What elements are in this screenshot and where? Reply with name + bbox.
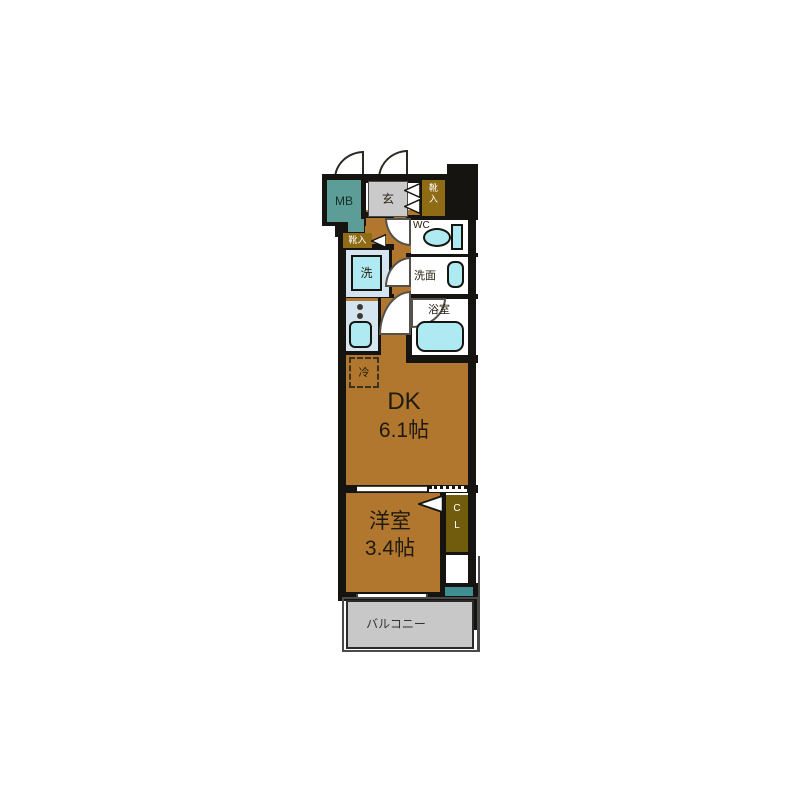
bathroom: 浴室 [412,299,468,355]
wc-room: WC [411,220,468,254]
dotted-wall-segment [429,486,467,492]
fridge-space: 冷 [349,357,379,388]
washer-area: 洗 [346,250,389,297]
floor-plan: MB 玄 靴入 WC 洗面 浴室 靴入 洗 [0,0,800,800]
wall-right [468,220,476,583]
toilet-bowl-icon [423,228,451,247]
balcony-label: バルコニー [348,602,472,647]
washroom: 洗面 [411,257,468,294]
closet-bottom-line [444,552,470,555]
dk-name: DK [354,388,454,416]
shoe-cabinet-upper: 靴入 [420,178,447,218]
shoe-cabinet-lower-label: 靴入 [343,233,372,248]
fridge-label: 冷 [351,359,377,387]
kitchen-area [346,301,378,351]
entrance-area: 玄 [368,181,408,217]
washing-machine-icon: 洗 [351,255,382,291]
shoe-door-triangle-top [404,183,420,198]
closet-door-triangle [418,495,443,513]
closet-label: CL [452,503,463,549]
bathroom-label: 浴室 [428,301,450,317]
washbasin-icon [447,261,464,288]
dk-size: 6.1帖 [354,414,454,444]
pipe-space [446,556,468,583]
entrance-label: 玄 [369,182,407,216]
stove-burner-icon-1 [357,304,363,310]
wall-top-right-block [447,164,478,220]
meter-box-label: MB [327,180,361,222]
corner-teal-strip [445,587,473,596]
shoe-cabinet-upper-label: 靴入 [427,183,440,217]
shoe-door-triangle-bottom [404,199,420,214]
kitchen-sink-icon [349,321,372,348]
balcony: バルコニー [346,600,474,649]
meter-box-room: MB [327,180,361,222]
bathtub-icon [416,321,464,352]
toilet-tank-icon [451,224,463,250]
building-outer-line-right [478,556,480,652]
shoe-cabinet-lower-door-triangle [371,234,386,248]
sliding-door [357,486,427,492]
washer-label: 洗 [353,257,380,289]
western-room-size: 3.4帖 [340,532,440,562]
washroom-label: 洗面 [414,267,436,283]
stove-burner-icon-2 [357,313,363,319]
closet: CL [446,495,468,552]
wall-kitchen-bottom [338,351,381,355]
shoe-cabinet-lower: 靴入 [343,233,372,248]
meter-box-small-square [348,219,364,232]
